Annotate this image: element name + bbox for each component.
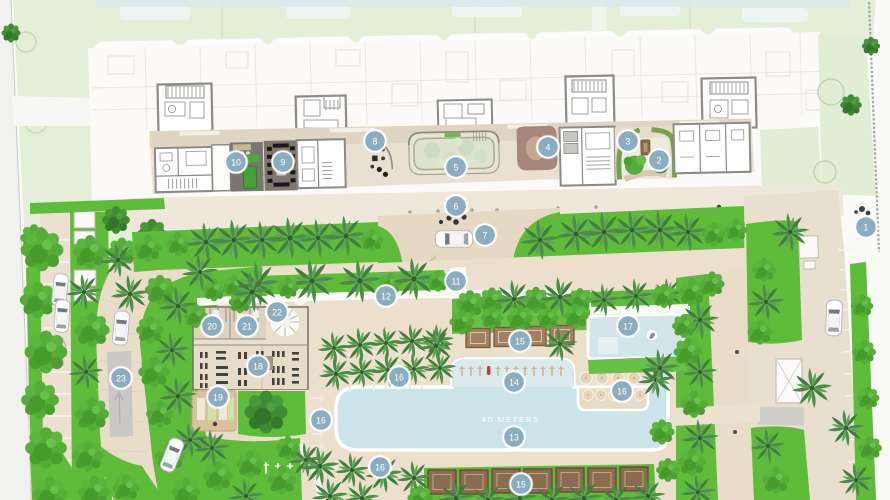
svg-text:13: 13 [509, 433, 519, 443]
svg-text:21: 21 [242, 322, 252, 332]
svg-text:23: 23 [116, 374, 126, 384]
svg-text:6: 6 [454, 202, 459, 212]
svg-text:3: 3 [626, 137, 631, 147]
svg-text:5: 5 [454, 163, 459, 173]
svg-text:8: 8 [373, 137, 378, 147]
svg-text:15: 15 [516, 480, 526, 490]
svg-text:2: 2 [657, 156, 662, 166]
svg-text:9: 9 [281, 158, 286, 168]
svg-text:11: 11 [451, 277, 460, 287]
svg-text:16: 16 [617, 387, 627, 397]
svg-text:19: 19 [213, 393, 223, 403]
svg-text:16: 16 [316, 416, 326, 426]
svg-text:10: 10 [231, 158, 241, 168]
svg-text:15: 15 [515, 337, 525, 347]
svg-text:12: 12 [381, 292, 391, 302]
svg-text:22: 22 [272, 308, 282, 318]
svg-text:17: 17 [623, 322, 633, 332]
svg-text:7: 7 [483, 231, 488, 241]
svg-text:16: 16 [394, 373, 404, 383]
svg-text:1: 1 [864, 223, 869, 233]
svg-text:40 METERS: 40 METERS [482, 415, 540, 424]
svg-text:16: 16 [375, 463, 385, 473]
svg-text:4: 4 [546, 143, 551, 153]
svg-text:14: 14 [509, 378, 519, 388]
svg-text:20: 20 [207, 322, 217, 332]
svg-text:18: 18 [253, 362, 263, 372]
